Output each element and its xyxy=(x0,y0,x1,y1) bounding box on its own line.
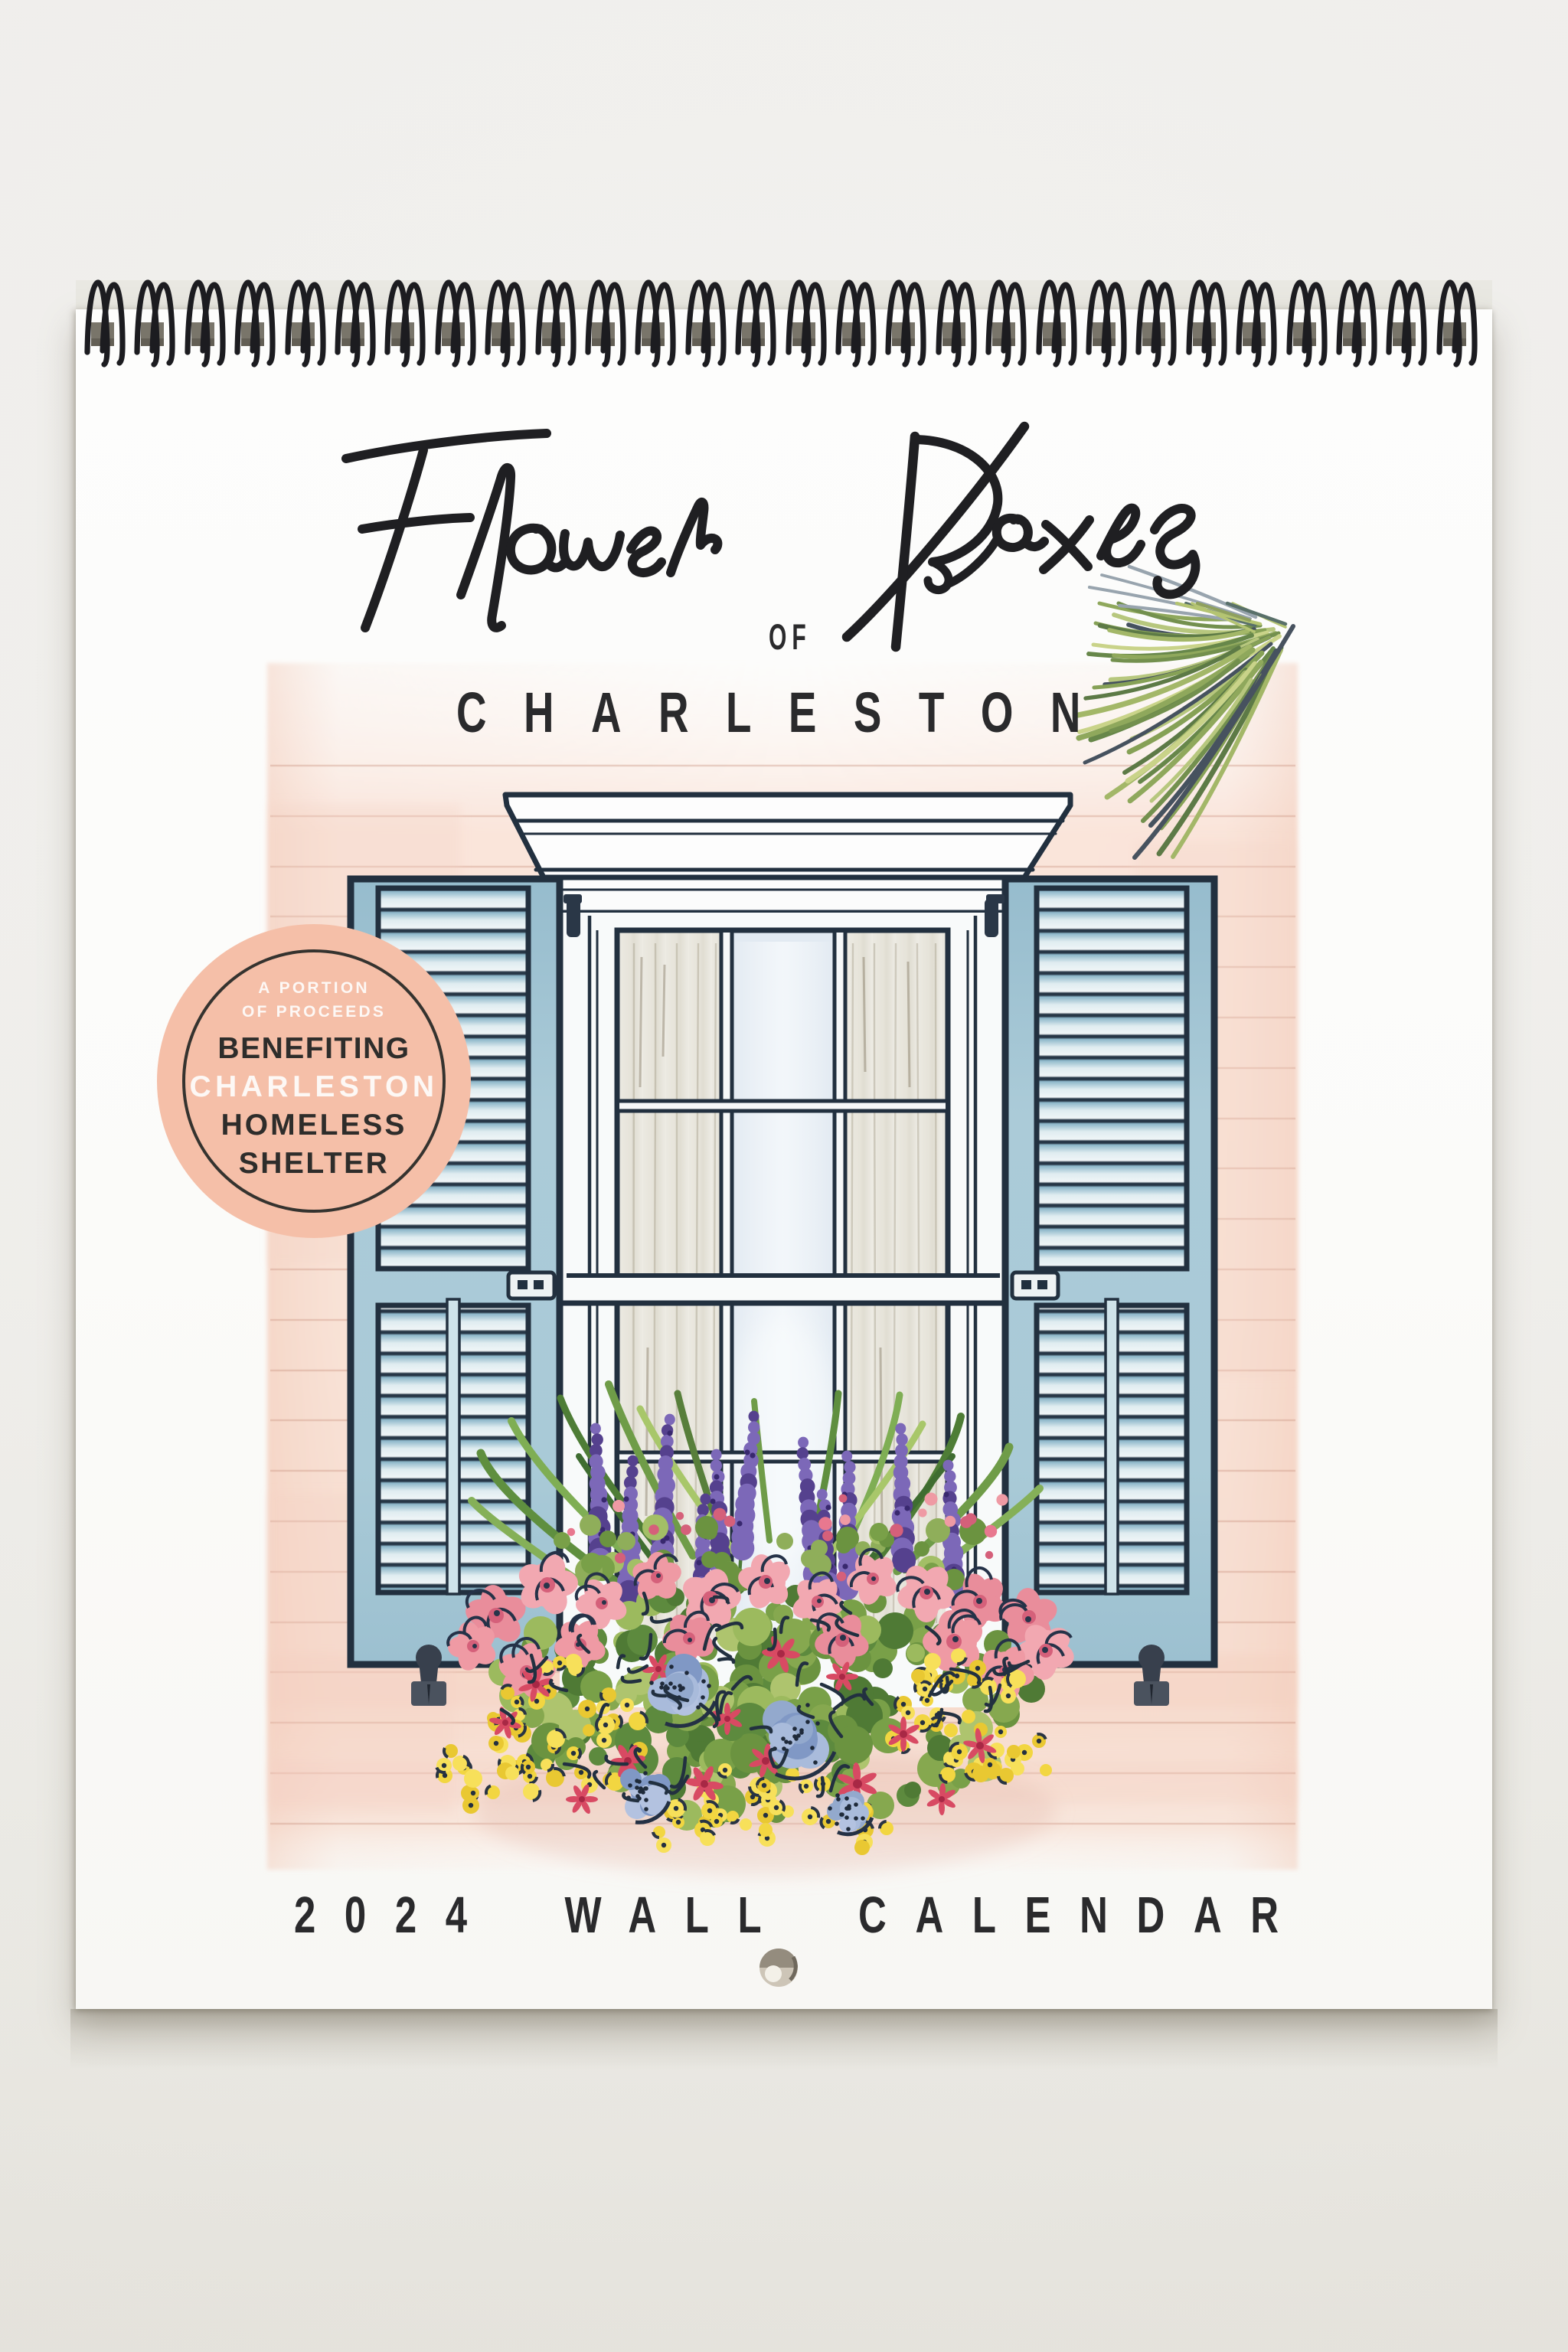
svg-text:2024 WALL CALENDAR: 2024 WALL CALENDAR xyxy=(294,1886,1308,1943)
svg-text:OF: OF xyxy=(769,617,812,657)
svg-text:CHARLESTON: CHARLESTON xyxy=(456,681,1118,744)
